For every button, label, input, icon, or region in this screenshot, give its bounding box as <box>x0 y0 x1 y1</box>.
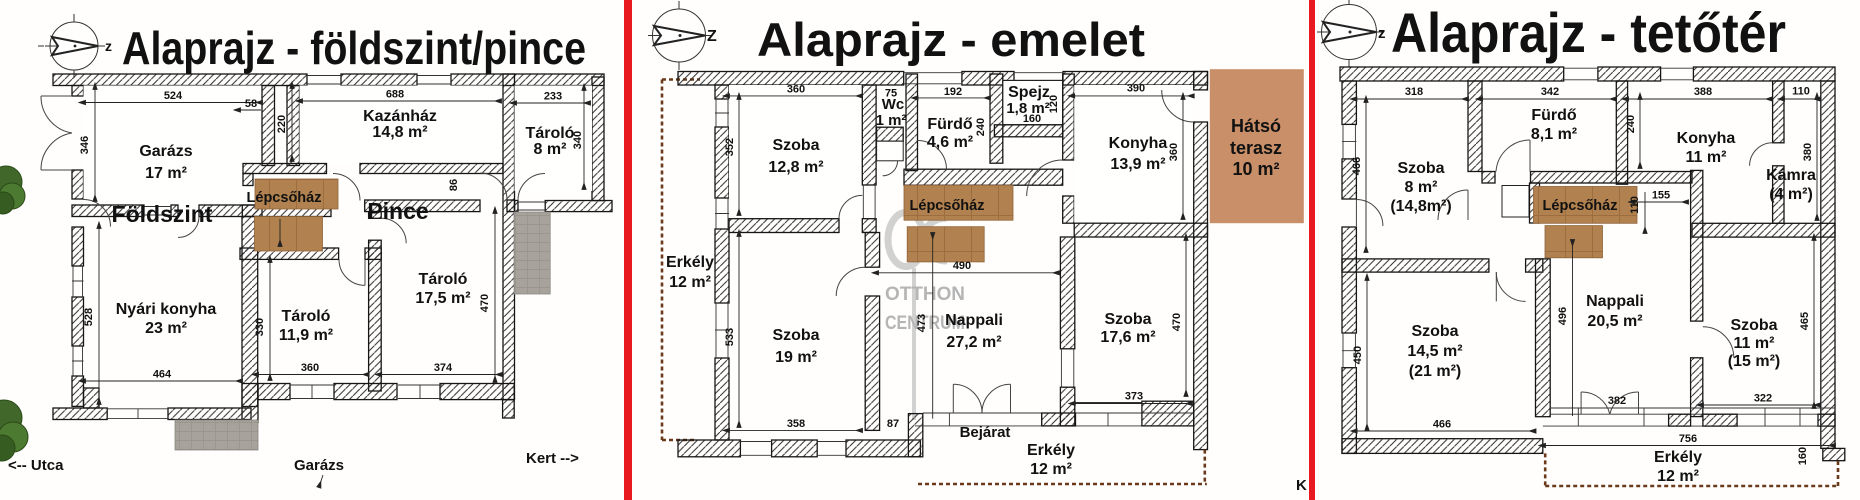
svg-text:z: z <box>1378 25 1386 42</box>
svg-text:23 m²: 23 m² <box>145 320 187 337</box>
svg-text:192: 192 <box>944 86 962 98</box>
svg-text:110: 110 <box>1629 196 1641 214</box>
svg-text:<-- Utca: <-- Utca <box>8 457 64 474</box>
svg-text:17,5 m²: 17,5 m² <box>415 290 470 307</box>
svg-text:382: 382 <box>1608 395 1626 407</box>
svg-text:155: 155 <box>1652 189 1670 201</box>
svg-text:K: K <box>1296 477 1307 494</box>
svg-text:Konyha: Konyha <box>1109 135 1168 152</box>
svg-text:360: 360 <box>1168 143 1180 161</box>
svg-text:Z: Z <box>707 28 717 45</box>
svg-text:Nappali: Nappali <box>1586 293 1644 310</box>
svg-text:86: 86 <box>448 179 460 191</box>
svg-text:Lépcsőház: Lépcsőház <box>247 190 322 206</box>
svg-text:OTTHON: OTTHON <box>885 284 965 305</box>
svg-text:20,5 m²: 20,5 m² <box>1587 313 1642 330</box>
svg-text:464: 464 <box>153 369 172 381</box>
svg-text:Hátsó: Hátsó <box>1231 116 1281 136</box>
svg-text:352: 352 <box>724 138 736 156</box>
svg-text:Tároló: Tároló <box>282 308 331 325</box>
svg-text:Alaprajz - emelet: Alaprajz - emelet <box>757 13 1145 66</box>
svg-text:12 m²: 12 m² <box>1657 468 1699 485</box>
svg-text:12,8 m²: 12,8 m² <box>768 159 823 176</box>
svg-text:533: 533 <box>724 328 736 346</box>
svg-text:358: 358 <box>787 418 805 430</box>
svg-text:12 m²: 12 m² <box>669 274 711 291</box>
svg-text:528: 528 <box>83 308 95 326</box>
svg-text:450: 450 <box>1352 346 1364 364</box>
svg-text:Szoba: Szoba <box>1104 311 1151 328</box>
svg-text:Kert -->: Kert --> <box>526 450 579 467</box>
svg-text:(4 m²): (4 m²) <box>1769 186 1813 203</box>
svg-text:Nyári konyha: Nyári konyha <box>116 301 217 318</box>
svg-text:27,2 m²: 27,2 m² <box>946 334 1001 351</box>
svg-text:1 m²: 1 m² <box>876 112 907 129</box>
svg-text:346: 346 <box>79 136 91 154</box>
svg-text:342: 342 <box>1541 86 1559 98</box>
svg-text:Szoba: Szoba <box>1411 323 1458 340</box>
svg-text:Erkély: Erkély <box>1027 442 1075 459</box>
svg-text:390: 390 <box>1127 83 1145 95</box>
svg-text:373: 373 <box>1125 391 1143 403</box>
svg-text:465: 465 <box>1799 312 1811 330</box>
svg-text:11 m²: 11 m² <box>1734 335 1775 352</box>
svg-text:Lépcsőház: Lépcsőház <box>910 198 985 214</box>
svg-text:524: 524 <box>164 90 183 102</box>
svg-text:688: 688 <box>386 89 404 101</box>
svg-text:388: 388 <box>1694 86 1712 98</box>
svg-text:13,9 m²: 13,9 m² <box>1110 156 1165 173</box>
svg-text:11,9 m²: 11,9 m² <box>279 327 333 344</box>
svg-text:Spejz: Spejz <box>1008 84 1050 101</box>
svg-text:(14,8m²): (14,8m²) <box>1390 198 1451 215</box>
svg-text:58: 58 <box>245 98 257 110</box>
svg-text:Pince: Pince <box>367 198 428 224</box>
svg-text:496: 496 <box>1557 307 1569 325</box>
svg-text:240: 240 <box>975 118 987 136</box>
svg-text:490: 490 <box>953 260 971 272</box>
svg-text:17,6 m²: 17,6 m² <box>1100 329 1155 346</box>
svg-text:Garázs: Garázs <box>294 457 344 474</box>
svg-text:Szoba: Szoba <box>772 327 819 344</box>
svg-text:Fürdő: Fürdő <box>1531 107 1577 124</box>
svg-text:Nappali: Nappali <box>945 312 1003 329</box>
svg-text:318: 318 <box>1405 86 1423 98</box>
svg-text:Fürdő: Fürdő <box>927 116 973 133</box>
svg-text:330: 330 <box>254 318 266 336</box>
svg-text:360: 360 <box>787 84 805 96</box>
svg-text:Wc: Wc <box>882 96 905 113</box>
svg-text:14,5 m²: 14,5 m² <box>1407 343 1462 360</box>
svg-text:Szoba: Szoba <box>1730 317 1777 334</box>
svg-text:Kámra: Kámra <box>1766 167 1816 184</box>
svg-text:470: 470 <box>479 294 491 312</box>
svg-text:87: 87 <box>887 418 899 430</box>
svg-text:Tároló: Tároló <box>526 125 575 142</box>
svg-text:380: 380 <box>1802 143 1814 161</box>
svg-text:(21 m²): (21 m²) <box>1409 363 1461 380</box>
svg-text:1,8 m²: 1,8 m² <box>1006 100 1049 117</box>
svg-text:220: 220 <box>276 115 288 133</box>
svg-text:Alaprajz - földszint/pince: Alaprajz - földszint/pince <box>122 22 586 74</box>
svg-text:8 m²: 8 m² <box>1405 179 1438 196</box>
svg-text:240: 240 <box>1625 115 1637 133</box>
svg-text:Erkély: Erkély <box>1654 449 1702 466</box>
svg-text:473: 473 <box>916 314 928 332</box>
svg-text:8 m²: 8 m² <box>534 141 567 158</box>
svg-text:Bejárat: Bejárat <box>960 424 1011 441</box>
svg-text:233: 233 <box>544 91 562 103</box>
svg-text:756: 756 <box>1679 433 1697 445</box>
svg-text:8,1 m²: 8,1 m² <box>1531 126 1577 143</box>
svg-text:(15 m²): (15 m²) <box>1728 353 1780 370</box>
svg-text:Szoba: Szoba <box>1397 160 1444 177</box>
svg-text:466: 466 <box>1433 418 1451 430</box>
svg-text:Garázs: Garázs <box>139 143 192 160</box>
svg-text:Tároló: Tároló <box>419 271 468 288</box>
svg-text:11 m²: 11 m² <box>1686 149 1727 166</box>
svg-text:360: 360 <box>301 362 319 374</box>
svg-text:19 m²: 19 m² <box>775 349 817 366</box>
svg-text:Földszint: Földszint <box>112 201 213 227</box>
svg-text:466: 466 <box>1351 157 1363 175</box>
svg-text:374: 374 <box>434 362 453 374</box>
svg-text:322: 322 <box>1754 393 1772 405</box>
svg-text:Kazánház: Kazánház <box>363 108 437 125</box>
svg-text:110: 110 <box>1792 85 1810 97</box>
svg-text:Lépcsőház: Lépcsőház <box>1543 198 1618 214</box>
svg-text:z: z <box>105 38 112 54</box>
svg-text:terasz: terasz <box>1230 138 1282 158</box>
svg-text:Alaprajz - tetőtér: Alaprajz - tetőtér <box>1391 1 1786 64</box>
svg-text:4,6 m²: 4,6 m² <box>927 134 973 151</box>
svg-text:17 m²: 17 m² <box>145 165 187 182</box>
svg-text:470: 470 <box>1171 313 1183 331</box>
svg-text:Konyha: Konyha <box>1677 130 1736 147</box>
svg-text:10 m²: 10 m² <box>1232 159 1279 179</box>
svg-text:Szoba: Szoba <box>772 137 819 154</box>
svg-text:12 m²: 12 m² <box>1030 461 1072 478</box>
svg-text:14,8 m²: 14,8 m² <box>372 124 427 141</box>
svg-text:Erkély: Erkély <box>666 254 714 271</box>
svg-text:160: 160 <box>1797 447 1809 465</box>
